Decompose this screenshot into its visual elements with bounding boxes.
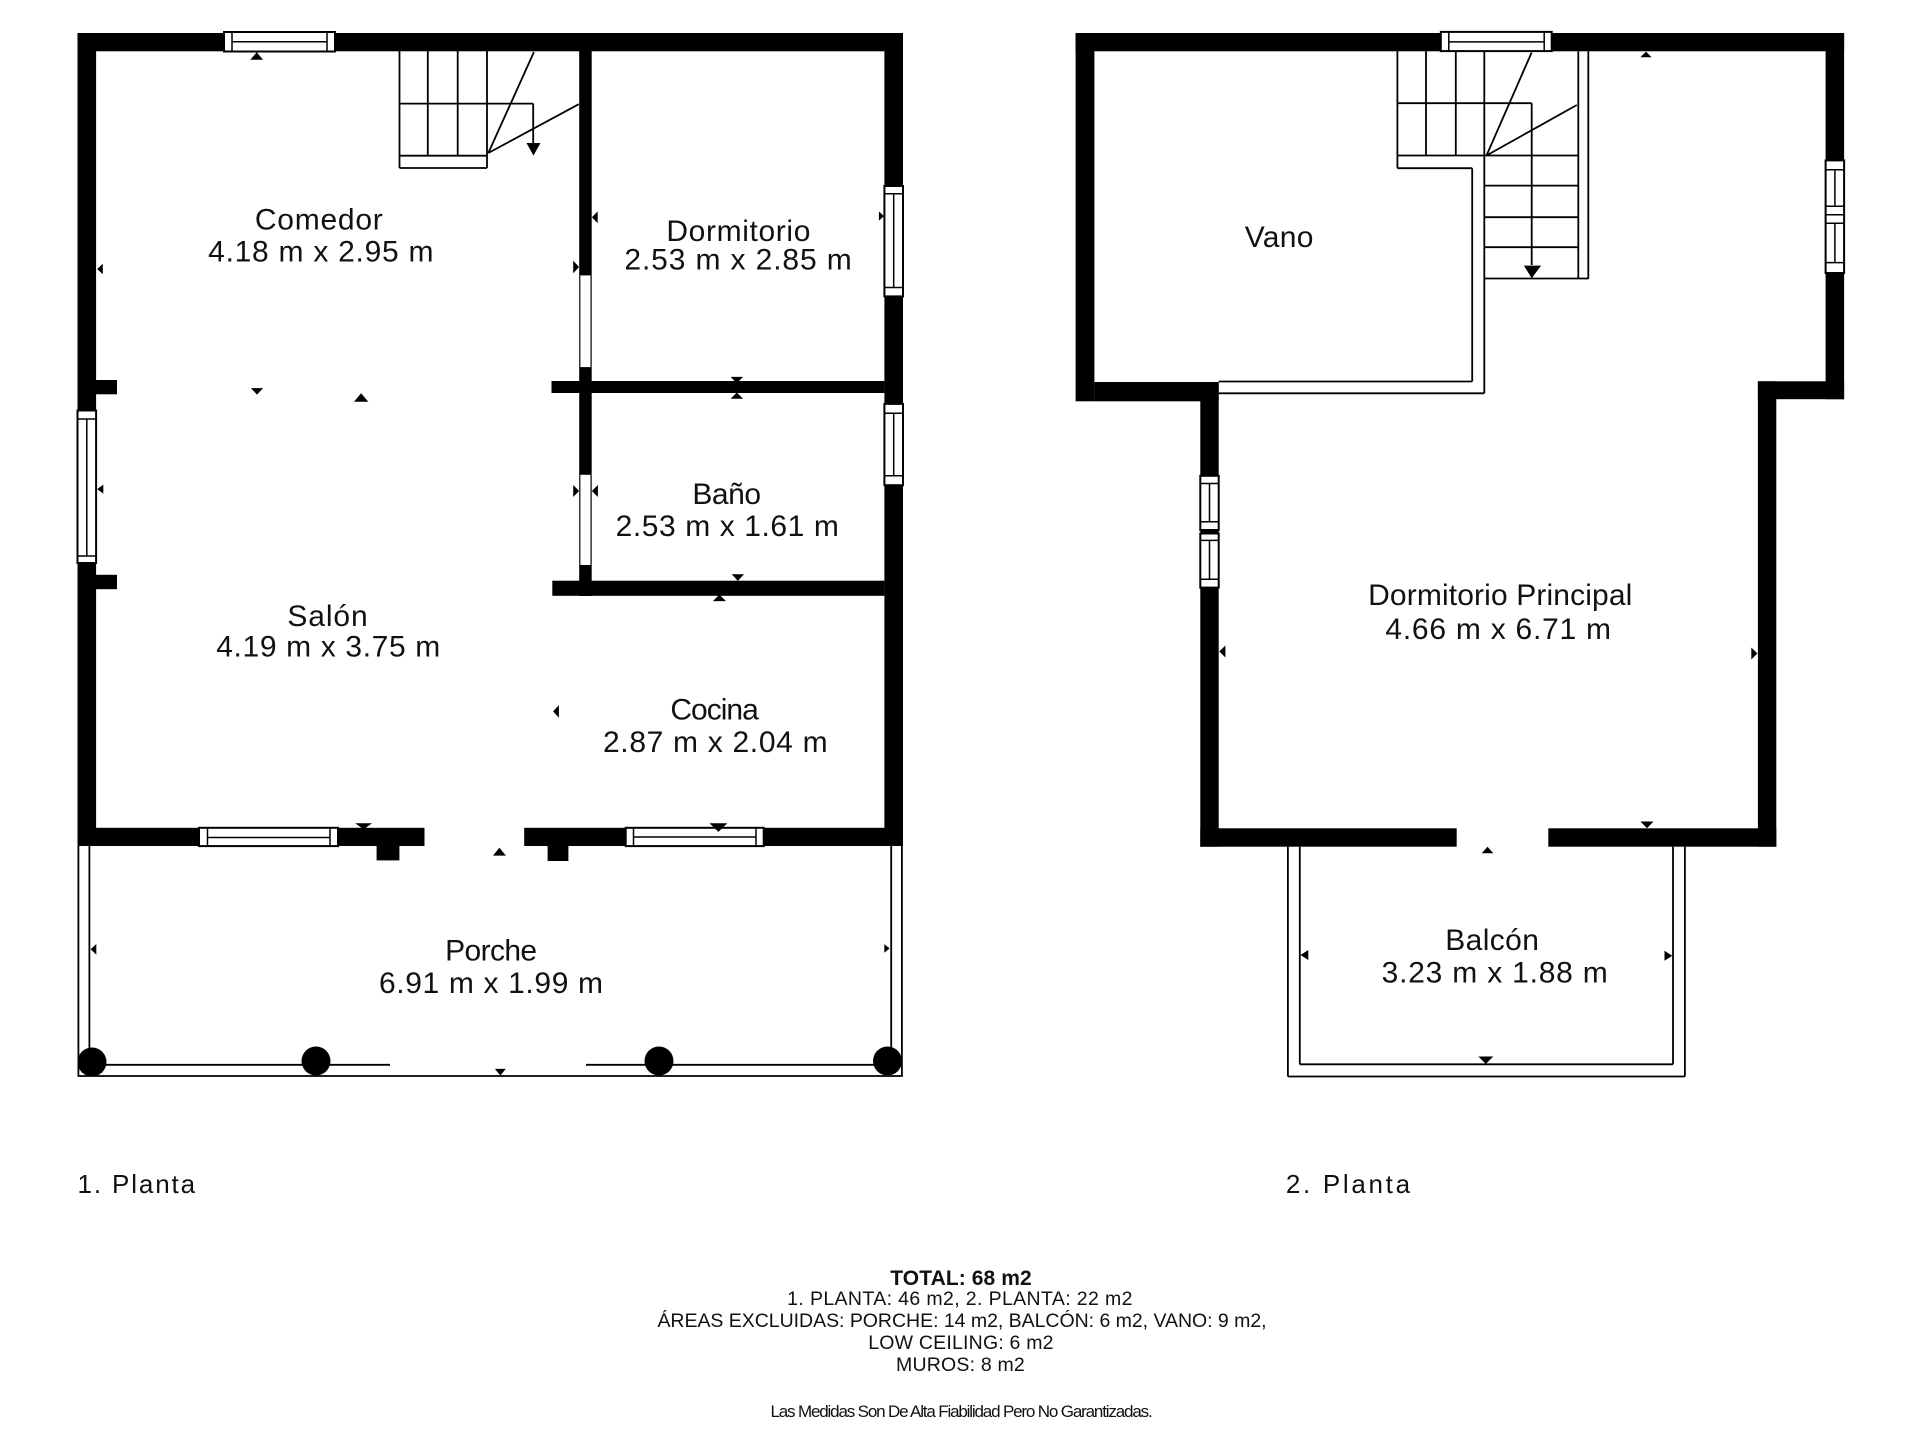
svg-text:Balcón: Balcón — [1445, 924, 1539, 957]
svg-text:Las Medidas Son De Alta Fiabil: Las Medidas Son De Alta Fiabilidad Pero … — [770, 1402, 1152, 1421]
svg-text:4.66 m x 6.71 m: 4.66 m x 6.71 m — [1385, 613, 1611, 646]
svg-text:Porche: Porche — [445, 935, 536, 968]
svg-text:Baño: Baño — [692, 478, 760, 511]
svg-text:Dormitorio Principal: Dormitorio Principal — [1368, 579, 1632, 612]
svg-text:Vano: Vano — [1245, 221, 1314, 254]
svg-text:Cocina: Cocina — [670, 694, 759, 727]
svg-text:4.18 m x 2.95 m: 4.18 m x 2.95 m — [208, 236, 434, 269]
svg-text:MUROS: 8 m2: MUROS: 8 m2 — [896, 1354, 1025, 1376]
svg-text:Salón: Salón — [287, 600, 368, 633]
svg-text:2.87 m x 2.04 m: 2.87 m x 2.04 m — [603, 726, 828, 759]
svg-text:2.53 m x 1.61 m: 2.53 m x 1.61 m — [616, 510, 840, 543]
svg-text:LOW CEILING: 6 m2: LOW CEILING: 6 m2 — [868, 1332, 1053, 1354]
svg-text:4.19 m x 3.75 m: 4.19 m x 3.75 m — [216, 631, 441, 664]
svg-text:TOTAL: 68 m2: TOTAL: 68 m2 — [890, 1267, 1032, 1290]
svg-text:Comedor: Comedor — [255, 204, 384, 237]
svg-text:3.23 m x 1.88 m: 3.23 m x 1.88 m — [1382, 957, 1609, 990]
svg-text:1. PLANTA: 46 m2, 2. PLANTA: 2: 1. PLANTA: 46 m2, 2. PLANTA: 22 m2 — [787, 1288, 1133, 1310]
svg-text:1. Planta: 1. Planta — [78, 1169, 197, 1199]
svg-text:2.53 m x 2.85 m: 2.53 m x 2.85 m — [624, 244, 852, 277]
svg-text:2. Planta: 2. Planta — [1286, 1169, 1413, 1199]
svg-text:6.91 m x 1.99 m: 6.91 m x 1.99 m — [379, 967, 604, 1000]
svg-text:ÁREAS EXCLUIDAS: PORCHE: 14 m2: ÁREAS EXCLUIDAS: PORCHE: 14 m2, BALCÓN: … — [657, 1309, 1266, 1332]
